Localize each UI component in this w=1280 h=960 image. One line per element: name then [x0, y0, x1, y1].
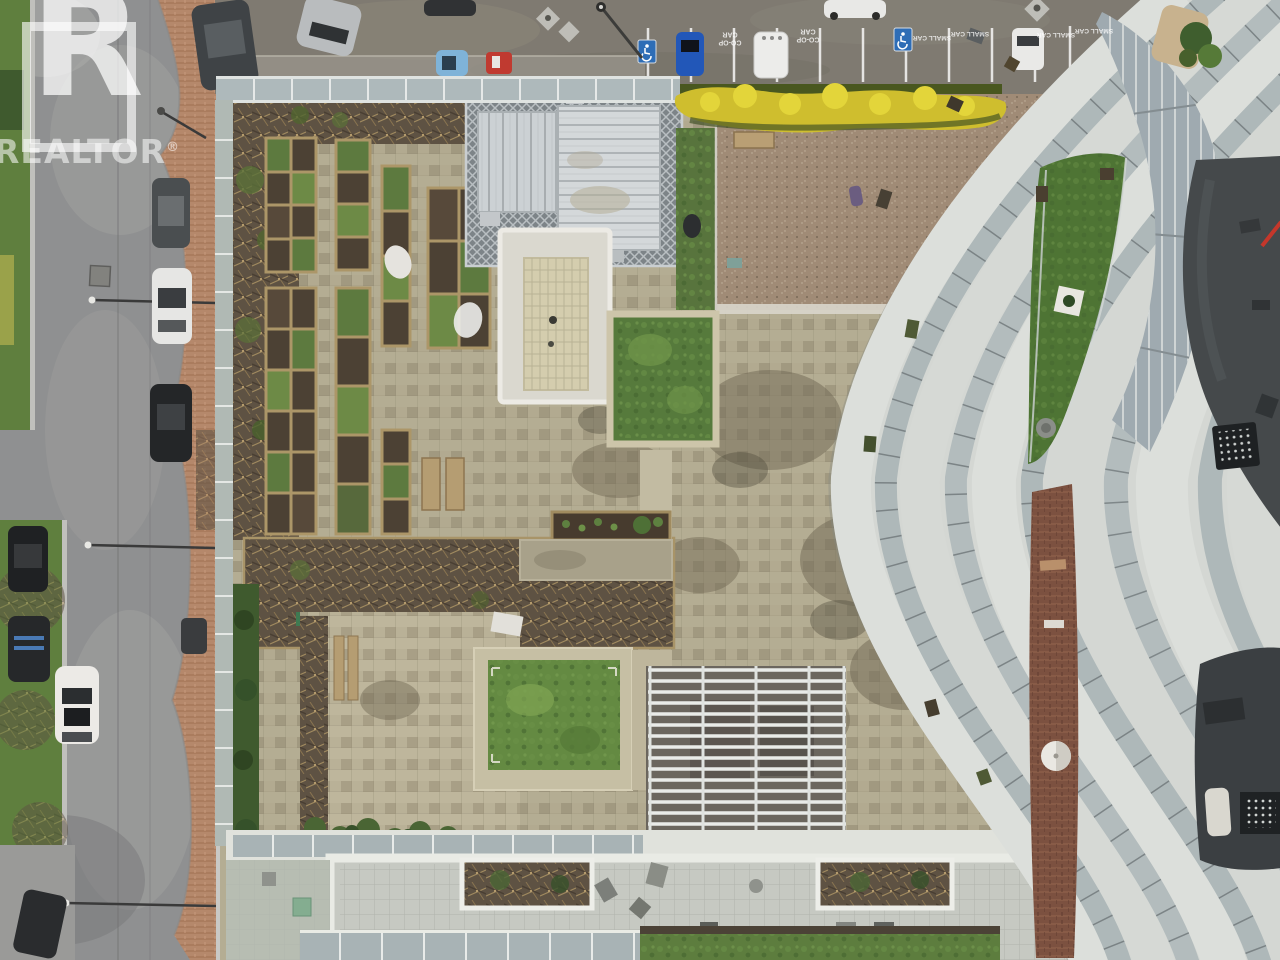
skylight	[500, 230, 610, 402]
small-car-stall-label: SMALL CAR	[950, 30, 990, 37]
aerial-photo-scene: R REALTOR® CO-OP CAR CO-OP CAR SMALL CAR…	[0, 0, 1280, 960]
brick-wall-strip	[1029, 484, 1078, 958]
seedling-planter	[552, 512, 670, 540]
garden-bed	[266, 288, 316, 534]
pergola-trellis	[646, 666, 846, 854]
chair	[262, 872, 276, 886]
garden-bed	[382, 430, 410, 534]
coop-car-stall-label: CO-OP CAR	[794, 27, 822, 42]
utility-box	[727, 258, 742, 268]
terrace-planter	[818, 860, 952, 908]
moving-car	[55, 666, 99, 744]
garden-bed	[336, 288, 370, 534]
small-car-stall-label: SMALL CAR	[1036, 31, 1076, 38]
grass-verge-top	[0, 0, 30, 430]
garden-bed	[266, 138, 316, 272]
dark-bag	[683, 214, 701, 238]
small-car-stall-label: SMALL CAR	[1074, 27, 1114, 34]
wood-bench	[734, 132, 774, 148]
street	[0, 0, 218, 960]
terrace-planter	[462, 860, 592, 908]
glass-canopy-left	[215, 100, 233, 846]
small-car-stall-label: SMALL CAR	[912, 34, 952, 41]
lawn-square-upper	[610, 314, 716, 444]
photo-base	[0, 0, 1280, 960]
penthouse-roof-left	[478, 112, 556, 212]
garden-bed	[336, 140, 370, 270]
lounge-chair	[1204, 787, 1231, 837]
manhole-cover	[89, 265, 110, 286]
glass-canopy-top	[216, 76, 680, 103]
coop-car-stall-label: CO-OP CAR	[716, 30, 744, 45]
lawn-square-lower	[474, 648, 632, 790]
glass-canopy-lower	[300, 932, 640, 960]
green-table	[293, 898, 311, 916]
